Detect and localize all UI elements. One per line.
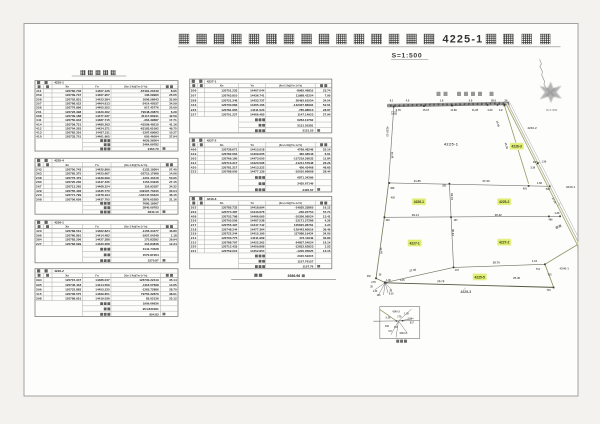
svg-text:716: 716 [547,289,552,292]
svg-text:4769.48249: 4769.48249 [297,148,313,152]
svg-text:(Xn+1-Xn)(Yn+1+Yn): (Xn+1-Xn)(Yn+1+Yn) [124,274,147,277]
svg-text:4.9: 4.9 [499,108,503,112]
svg-text:52.61: 52.61 [323,103,331,107]
svg-text:303: 303 [191,156,197,160]
svg-text:3435.67149: 3435.67149 [297,182,313,186]
svg-text:Xn: Xn [220,201,224,205]
svg-text:6263.10762: 6263.10762 [297,118,313,122]
svg-text:26.26: 26.26 [323,161,331,165]
svg-text:497: 497 [533,161,538,164]
svg-text:3131.55: 3131.55 [302,129,313,133]
svg-text:460.36646: 460.36646 [299,152,314,156]
svg-text:11988.42254: 11988.42254 [296,94,314,98]
svg-text:-10010.66668: -10010.66668 [295,170,314,174]
svg-text:4240-3: 4240-3 [392,310,400,313]
svg-text:120751.227: 120751.227 [221,113,237,117]
svg-text:415: 415 [36,292,42,296]
svg-text:Yn: Yn [250,201,254,205]
svg-text:48.65: 48.65 [323,165,331,169]
svg-text:3936.96: 3936.96 [288,274,301,278]
svg-text:443: 443 [191,103,197,107]
svg-text:120738.671: 120738.671 [221,148,237,152]
svg-text:426: 426 [391,197,396,200]
svg-text:308: 308 [36,197,42,201]
svg-text:28.70: 28.70 [493,261,500,265]
svg-text:83.02136: 83.02136 [146,297,159,301]
svg-text:179: 179 [397,316,402,319]
svg-text:N=1:250: N=1:250 [546,108,557,112]
svg-text:S=1:500: S=1:500 [392,53,423,60]
svg-text:410: 410 [36,135,42,139]
svg-text:14461.965: 14461.965 [95,135,110,139]
svg-text:15.15: 15.15 [423,108,430,112]
svg-text:491: 491 [523,187,528,190]
svg-text:120782.064: 120782.064 [221,152,237,156]
svg-text:1157.76157: 1157.76157 [297,259,313,263]
svg-text:207: 207 [191,94,197,98]
svg-text:120759.010: 120759.010 [221,249,237,253]
svg-text:416.84848: 416.84848 [144,242,159,246]
svg-text:30.61: 30.61 [451,229,455,236]
svg-text:817: 817 [410,321,415,324]
svg-text:1.40: 1.40 [373,290,378,293]
svg-text:14420.596: 14420.596 [250,161,265,165]
svg-text:227: 227 [191,113,197,117]
svg-text:227: 227 [36,242,42,246]
svg-text:2315.52315: 2315.52315 [297,254,313,258]
svg-text:226: 226 [191,108,197,112]
svg-text:426: 426 [386,219,391,222]
svg-text:(Xn+1-Xn)(Yn+1+Yn): (Xn+1-Xn)(Yn+1+Yn) [279,144,302,147]
svg-text:4.30: 4.30 [487,108,493,112]
svg-text:12.34: 12.34 [169,242,177,246]
svg-text:120788.005: 120788.005 [221,170,237,174]
svg-text:120700.683: 120700.683 [221,103,237,107]
svg-text:4240-2: 4240-2 [399,332,407,335]
svg-text:1.39: 1.39 [542,161,547,164]
svg-text:38.61: 38.61 [169,292,177,296]
svg-text:4226-1: 4226-1 [54,220,64,224]
svg-text:713: 713 [548,274,553,277]
svg-text:14414.509: 14414.509 [95,283,110,287]
svg-text:14436.741: 14436.741 [250,94,265,98]
svg-text:120763.810: 120763.810 [221,94,237,98]
svg-text:14486.047: 14486.047 [95,278,110,282]
svg-text:2.55: 2.55 [371,282,376,284]
svg-text:4227-1: 4227-1 [409,241,419,245]
svg-text:14437.705: 14437.705 [95,197,110,201]
svg-text:120781.317: 120781.317 [221,165,237,169]
svg-text:28.67: 28.67 [323,108,331,112]
svg-text:8.10: 8.10 [389,294,394,296]
svg-text:23.74: 23.74 [323,89,331,93]
svg-text:2.55: 2.55 [407,318,412,321]
svg-text:120751.233: 120751.233 [221,89,237,93]
svg-text:206: 206 [191,89,197,93]
svg-text:1.36: 1.36 [537,181,543,185]
svg-text:1.38: 1.38 [386,280,391,282]
svg-text:508: 508 [546,188,551,191]
svg-text:1909.66636: 1909.66636 [143,302,159,306]
svg-text:26.78: 26.78 [437,279,445,283]
svg-text:3.39: 3.39 [530,167,535,170]
svg-text:14.65: 14.65 [169,283,177,287]
svg-text:396: 396 [36,287,42,291]
svg-text:120706.575: 120706.575 [65,292,81,296]
svg-text:14411.023: 14411.023 [250,108,265,112]
svg-text:Yn: Yn [95,225,99,229]
svg-text:14413.018: 14413.018 [250,148,265,152]
svg-text:79750.32879: 79750.32879 [141,292,159,296]
svg-text:120722.883: 120722.883 [65,287,81,291]
svg-text:319: 319 [191,152,197,156]
svg-text:27.30: 27.30 [483,179,490,183]
svg-text:6871.34299: 6871.34299 [297,176,313,180]
svg-text:4240-1: 4240-1 [566,185,576,189]
svg-text:496: 496 [549,219,554,222]
svg-text:34.54: 34.54 [323,98,331,102]
svg-text:Yn: Yn [250,84,254,88]
svg-text:14430.368: 14430.368 [95,242,110,246]
svg-text:4227-2: 4227-2 [207,139,217,143]
svg-text:120782.699: 120782.699 [65,242,81,246]
svg-text:107: 107 [455,269,460,272]
svg-text:4226-1: 4226-1 [414,200,424,204]
svg-text:120713.317: 120713.317 [221,161,237,165]
svg-text:Xn: Xn [220,143,224,147]
svg-text:406: 406 [191,148,197,152]
svg-text:26492.61554: 26492.61554 [296,98,314,102]
svg-text:1.8: 1.8 [440,98,444,102]
svg-text:4225-1: 4225-1 [443,34,484,46]
svg-text:4226-3: 4226-3 [512,145,522,149]
svg-text:-8965.46810: -8965.46810 [296,89,313,93]
svg-text:13.15: 13.15 [323,249,331,253]
svg-text:126730.22419: 126730.22419 [139,278,159,282]
svg-text:4.05: 4.05 [400,279,405,282]
svg-text:4.0: 4.0 [406,98,410,102]
svg-text:32.72: 32.72 [450,193,454,200]
svg-text:Xn: Xn [65,163,69,167]
svg-text:4225-4: 4225-4 [54,159,64,163]
svg-text:14419.036: 14419.036 [95,297,110,301]
svg-text:28.0: 28.0 [491,98,497,102]
svg-text:14413.322: 14413.322 [250,165,265,169]
svg-text:14452.854: 14452.854 [250,249,265,253]
svg-text:1.36: 1.36 [554,211,560,215]
svg-text:14409.605: 14409.605 [250,152,265,156]
svg-text:Xn: Xn [65,273,69,277]
svg-text:6.61: 6.61 [325,152,331,156]
svg-text:29.14: 29.14 [412,213,419,217]
svg-text:11.95: 11.95 [472,108,479,112]
svg-text:Yn: Yn [250,143,254,147]
svg-text:120769.180: 120769.180 [221,156,237,160]
svg-text:394: 394 [36,278,42,282]
svg-text:221: 221 [191,249,197,253]
svg-text:14453.225: 14453.225 [95,287,110,291]
svg-text:3840.10: 3840.10 [148,210,159,214]
svg-text:954.83: 954.83 [149,312,159,316]
svg-text:28.70: 28.70 [169,287,177,291]
svg-text:410: 410 [394,326,399,329]
svg-text:14467.044: 14467.044 [250,89,265,93]
svg-text:Xn: Xn [65,225,69,229]
svg-text:7.90: 7.90 [325,94,331,98]
svg-text:37.94: 37.94 [169,135,177,139]
svg-text:4225-3: 4225-3 [461,290,472,294]
svg-text:4227-1: 4227-1 [207,79,217,83]
svg-text:Yn: Yn [95,163,99,167]
svg-text:4225-2: 4225-2 [499,200,509,204]
svg-text:28.44: 28.44 [323,170,331,174]
svg-text:4240-2: 4240-2 [527,126,537,130]
svg-text:1147.14923: 1147.14923 [297,113,313,117]
svg-text:25.40: 25.40 [513,276,520,280]
svg-text:Xn: Xn [220,84,224,88]
svg-text:714: 714 [536,268,541,271]
svg-text:2.8: 2.8 [469,98,473,102]
svg-text:1570.87264: 1570.87264 [143,253,159,257]
svg-text:14469.651: 14469.651 [95,292,110,296]
svg-text:4225-1: 4225-1 [54,81,64,85]
svg-text:2464.70: 2464.70 [148,147,159,151]
svg-text:4227-2: 4227-2 [499,241,509,245]
svg-text:281: 281 [442,185,447,188]
svg-text:456.43468: 456.43468 [299,165,314,169]
svg-text:120781.665: 120781.665 [221,108,237,112]
svg-text:27.94: 27.94 [323,113,331,117]
svg-text:4225-1: 4225-1 [444,141,459,146]
svg-text:14433.737: 14433.737 [250,98,265,102]
svg-text:11.84: 11.84 [323,156,331,160]
svg-text:14466.485: 14466.485 [250,113,265,117]
svg-text:120746.418: 120746.418 [65,283,81,287]
svg-text:25.12: 25.12 [169,297,177,301]
svg-text:(Xn+1-Xn)(Yn+1+Yn): (Xn+1-Xn)(Yn+1+Yn) [279,85,302,88]
svg-text:25.14: 25.14 [323,148,331,152]
svg-text:4240-3: 4240-3 [207,197,217,201]
svg-text:5.36: 5.36 [386,316,391,319]
svg-text:-132337.86994: -132337.86994 [293,103,314,107]
svg-text:120733.751: 120733.751 [65,135,81,139]
svg-text:120756.659: 120756.659 [65,197,81,201]
svg-text:31.16: 31.16 [169,197,177,201]
svg-text:954.833181: 954.833181 [143,307,159,311]
svg-text:314: 314 [191,161,197,165]
svg-text:4240-1: 4240-1 [560,267,570,271]
svg-text:30.48: 30.48 [390,152,394,159]
svg-text:26.32: 26.32 [495,213,502,217]
svg-text:11.80: 11.80 [450,108,457,112]
svg-text:-785.98610: -785.98610 [298,108,314,112]
svg-text:3435.67: 3435.67 [302,188,313,192]
svg-text:1.35: 1.35 [404,313,409,316]
svg-text:358: 358 [191,98,197,102]
svg-text:420: 420 [191,165,197,169]
svg-text:Yn: Yn [95,273,99,277]
svg-text:3141.74528: 3141.74528 [143,247,159,251]
svg-text:4226-2: 4226-2 [54,269,64,273]
svg-text:398: 398 [36,297,42,301]
svg-text:14473.050: 14473.050 [250,156,265,160]
svg-text:-117219.29033: -117219.29033 [293,156,314,160]
svg-text:-1200.05625: -1200.05625 [296,249,313,253]
svg-text:107: 107 [454,219,459,222]
svg-text:1157.76: 1157.76 [303,265,314,269]
svg-text:4225-13: 4225-13 [386,126,390,137]
svg-text:368: 368 [390,187,395,190]
svg-text:1.10: 1.10 [532,259,538,263]
svg-text:395: 395 [36,283,42,287]
svg-text:409: 409 [385,325,390,328]
svg-text:8.1: 8.1 [390,98,394,102]
svg-text:4225-5: 4225-5 [475,275,485,279]
svg-text:1570.87: 1570.87 [148,259,159,263]
svg-text:14465.166: 14465.166 [250,103,265,107]
svg-text:-11211.57948: -11211.57948 [295,161,314,165]
svg-text:120789.951: 120789.951 [65,297,81,301]
svg-text:223: 223 [191,170,197,174]
svg-text:21.85: 21.85 [414,179,421,183]
svg-text:-1263.72886: -1263.72886 [142,287,159,291]
svg-text:120715.347: 120715.347 [65,278,81,282]
svg-text:14477.139: 14477.139 [250,170,265,174]
svg-text:3131.55381: 3131.55381 [297,123,313,127]
svg-text:35.14: 35.14 [169,278,177,282]
svg-text:-4110.57698: -4110.57698 [142,283,159,287]
svg-text:120721.346: 120721.346 [221,98,237,102]
